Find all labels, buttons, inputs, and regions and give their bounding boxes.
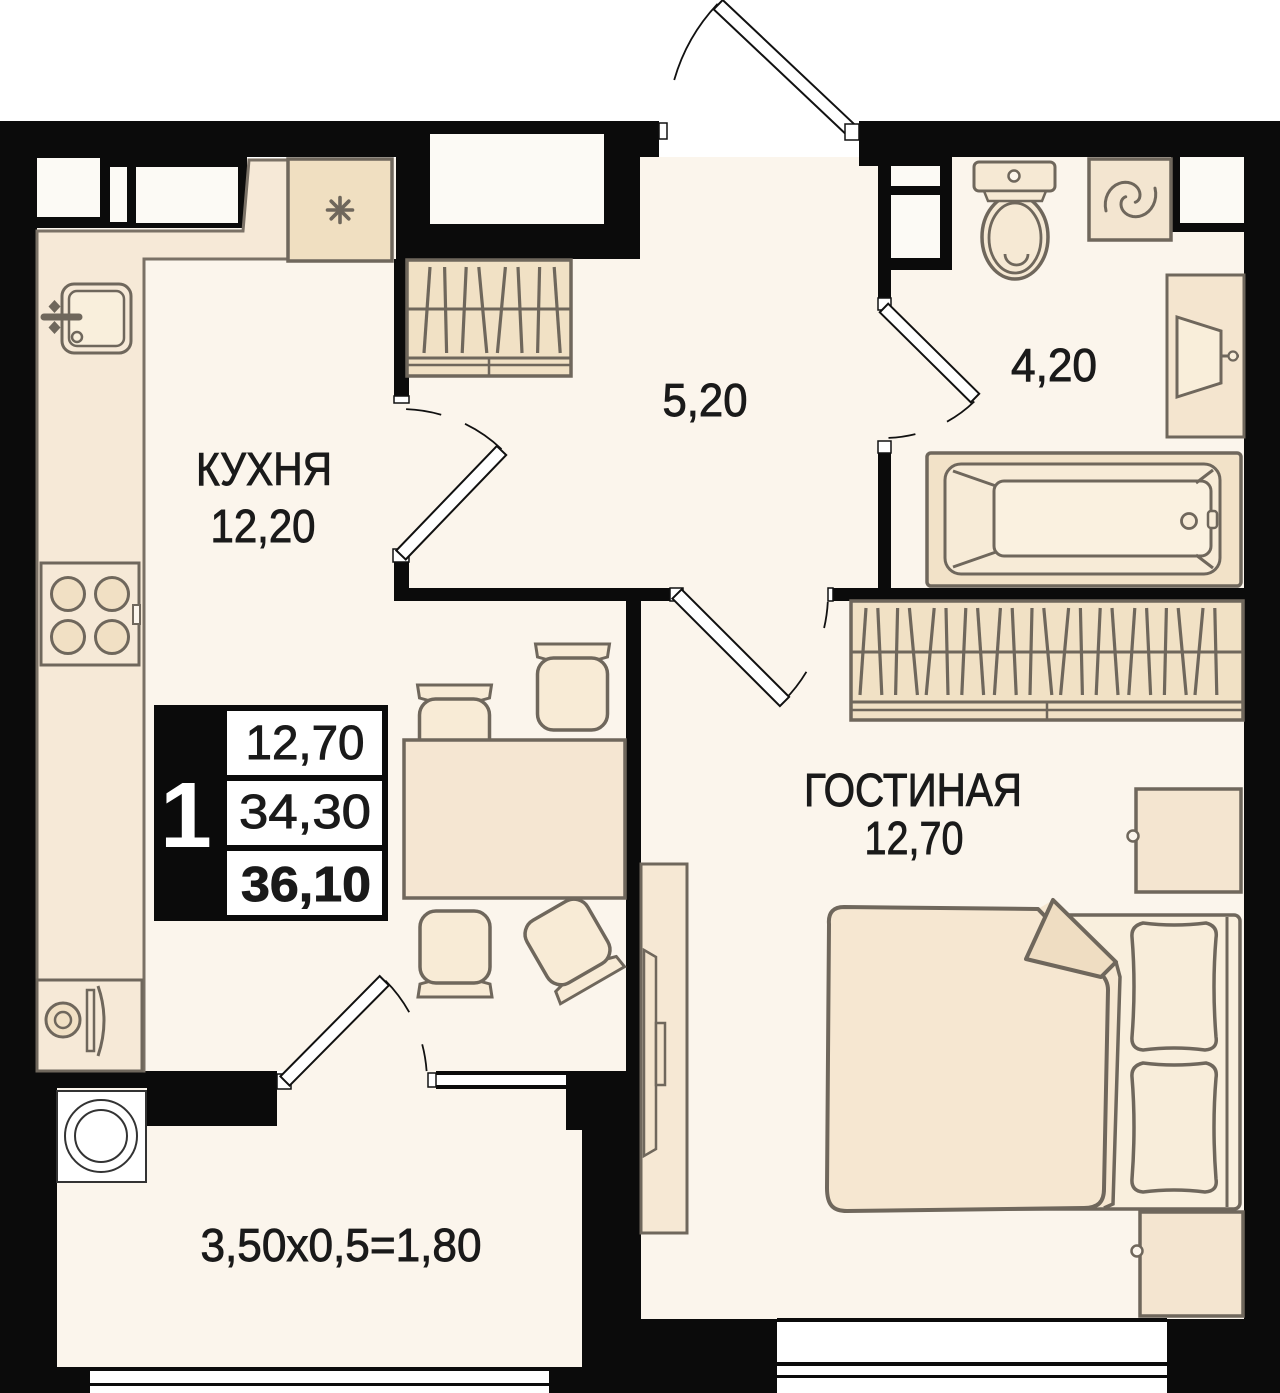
svg-text:КУХНЯ: КУХНЯ — [196, 443, 332, 495]
svg-text:36,10: 36,10 — [241, 858, 371, 912]
svg-text:ГОСТИНАЯ: ГОСТИНАЯ — [804, 764, 1022, 816]
svg-text:12,70: 12,70 — [865, 812, 964, 864]
svg-text:5,20: 5,20 — [663, 374, 748, 426]
svg-text:12,20: 12,20 — [211, 500, 316, 552]
svg-text:12,70: 12,70 — [246, 717, 365, 770]
svg-text:4,20: 4,20 — [1011, 339, 1097, 391]
svg-text:1: 1 — [160, 763, 212, 867]
svg-text:3,50x0,5=1,80: 3,50x0,5=1,80 — [201, 1219, 482, 1271]
svg-text:34,30: 34,30 — [239, 786, 371, 839]
